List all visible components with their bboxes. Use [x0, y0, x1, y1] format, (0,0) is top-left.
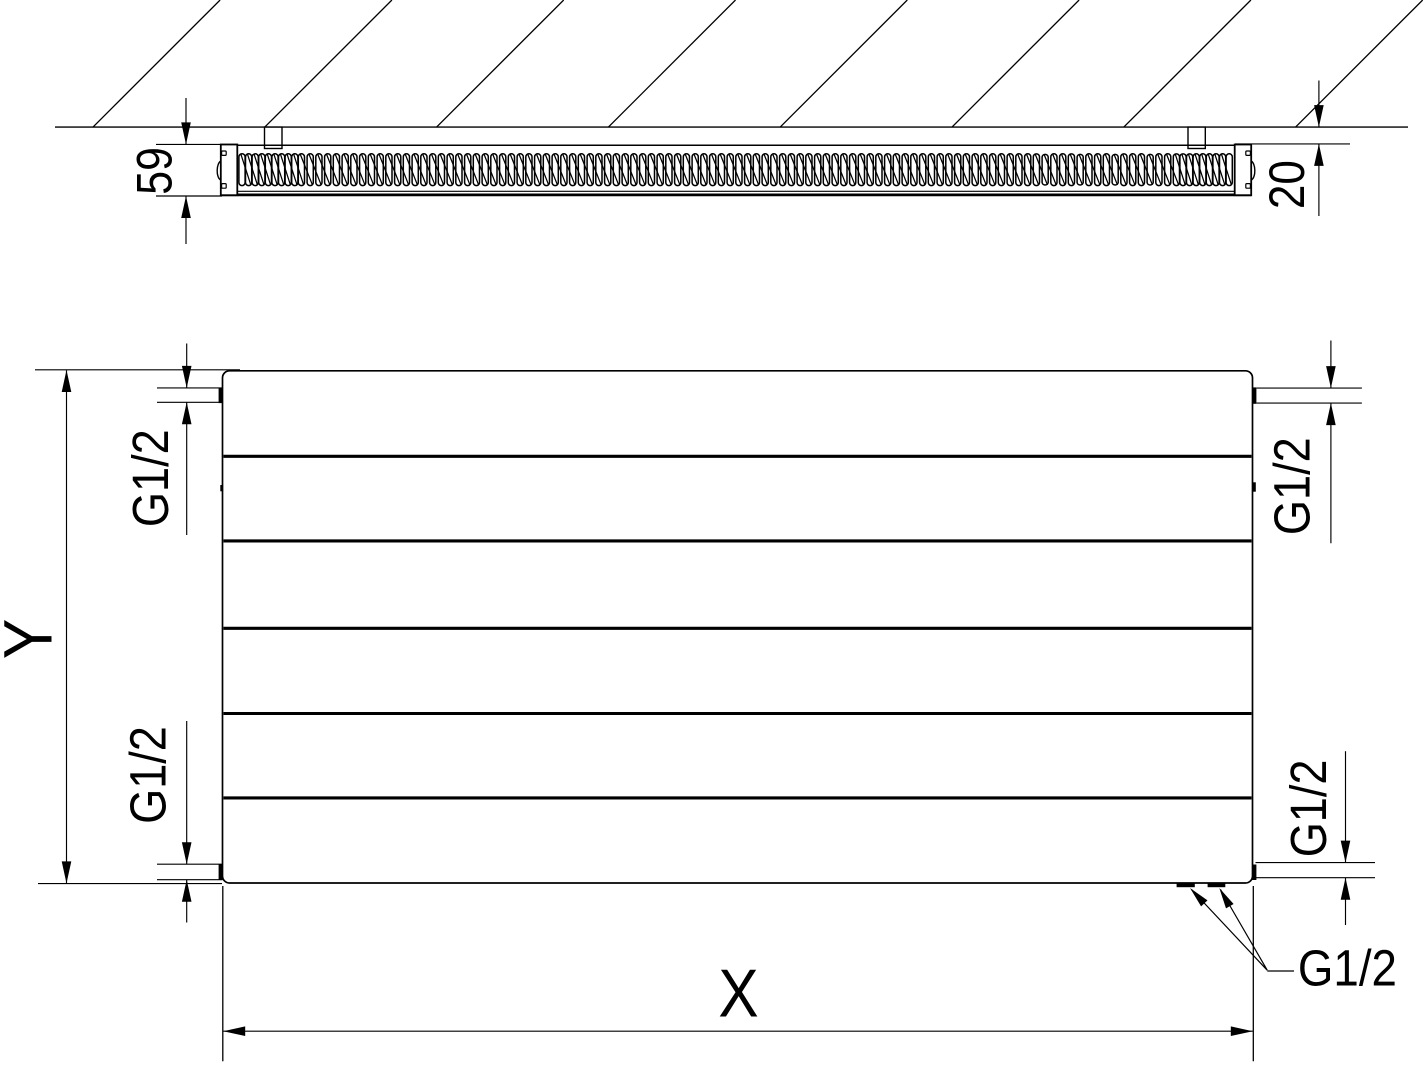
svg-text:Y: Y	[0, 619, 67, 660]
svg-text:G1/2: G1/2	[1264, 437, 1321, 535]
svg-text:G1/2: G1/2	[120, 726, 177, 824]
svg-text:G1/2: G1/2	[122, 429, 179, 527]
svg-text:G1/2: G1/2	[1280, 760, 1337, 858]
svg-text:20: 20	[1259, 160, 1315, 209]
svg-text:X: X	[718, 955, 758, 1031]
svg-text:G1/2: G1/2	[1298, 940, 1397, 997]
svg-text:59: 59	[126, 147, 182, 195]
